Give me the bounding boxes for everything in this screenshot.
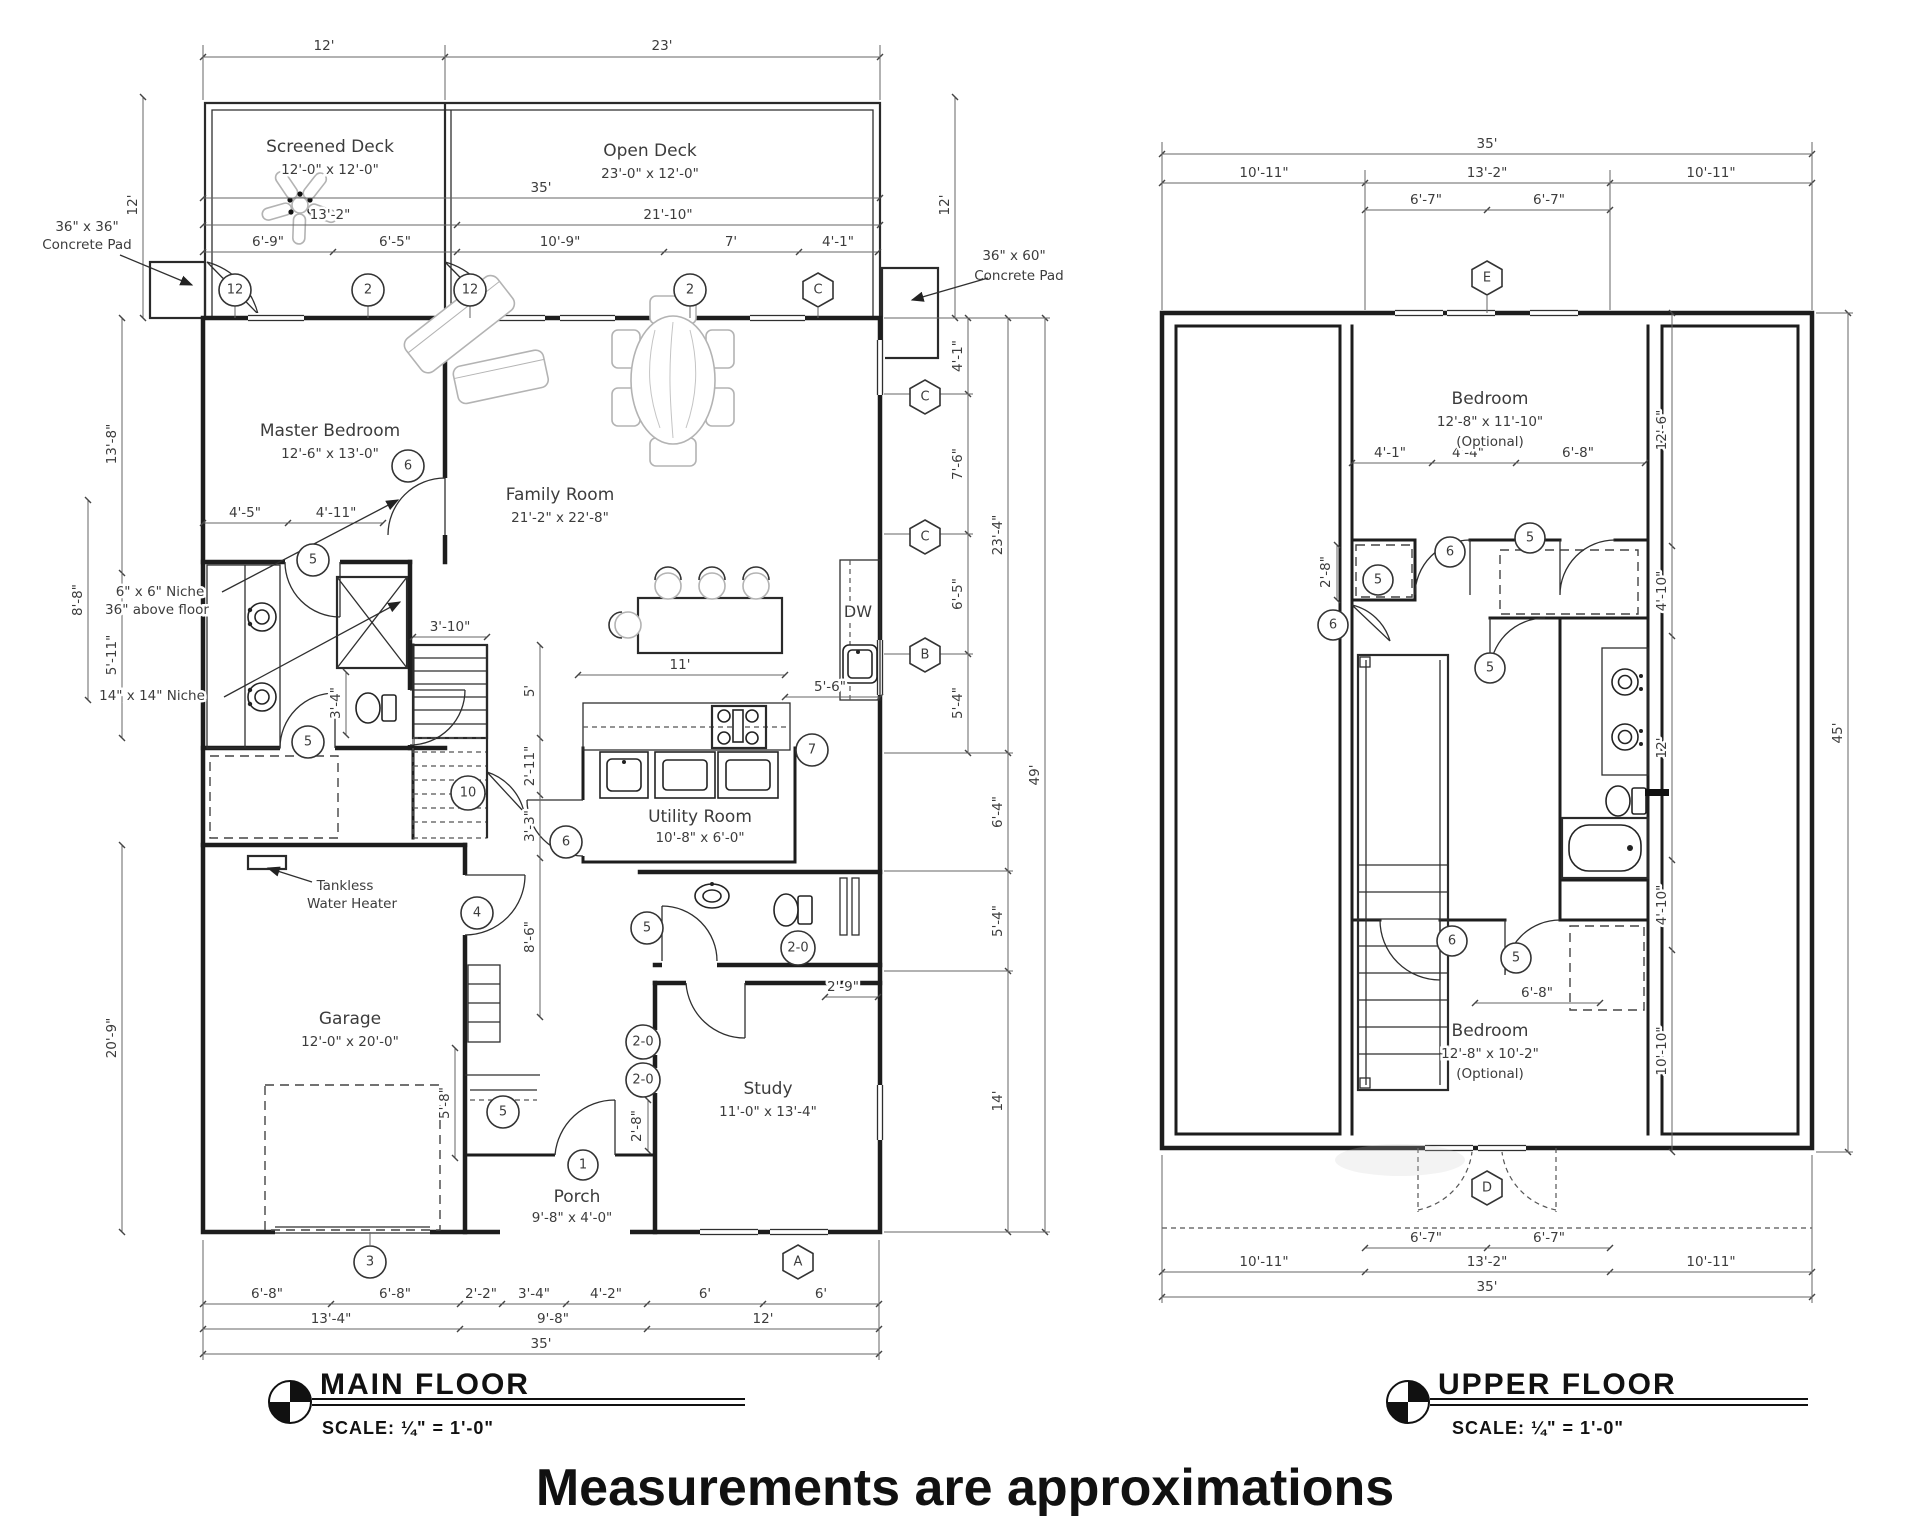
sink-icon: [248, 603, 276, 631]
callout-circle: 6: [550, 826, 582, 858]
callout-circle: 5: [631, 912, 663, 944]
callout-hex: C: [803, 273, 833, 307]
dim-label: 13'-8": [104, 424, 120, 465]
dim-label: 2'-2": [465, 1286, 497, 1302]
svg-text:6: 6: [1446, 545, 1454, 560]
main-floor-title: Main Floor: [320, 1368, 530, 1401]
dim-label: 6'-7": [1533, 1230, 1565, 1246]
dim-label: 12': [314, 38, 335, 54]
dim-label: 35': [531, 1336, 552, 1352]
dim-label: 2'-8": [1318, 556, 1334, 588]
checker-logo-icon: [269, 1381, 311, 1423]
kitchen-island: [638, 598, 782, 653]
dim-label: 8'-6": [522, 921, 538, 953]
dim-label: 13'-2": [1467, 1254, 1508, 1270]
pad-right-label: Concrete Pad: [974, 268, 1064, 284]
faint-watermark: [1335, 1144, 1465, 1176]
callout-hex: D: [1472, 1171, 1502, 1205]
dim-label: 6'-7": [1410, 1230, 1442, 1246]
closet-dashed: [1570, 926, 1644, 1010]
dim-label: 6'-7": [1533, 192, 1565, 208]
svg-text:5: 5: [1374, 573, 1382, 588]
svg-text:6: 6: [1448, 934, 1456, 949]
tankless-label: Water Heater: [307, 896, 398, 912]
svg-text:2-0: 2-0: [632, 1035, 653, 1050]
dim-label: 10'-11": [1686, 165, 1735, 181]
sink-icon: [1612, 669, 1643, 695]
dim-label: 20'-9": [104, 1018, 120, 1059]
room-name-open-deck: Open Deck: [603, 141, 697, 161]
main-fixtures: [207, 560, 880, 1230]
room-name-bedroom-bottom: Bedroom: [1452, 1021, 1529, 1041]
dim-label: 6'-5": [950, 578, 966, 610]
main-stairs: [413, 645, 487, 838]
callout-circle: 2-0: [781, 931, 815, 965]
tub-icon: [1562, 818, 1648, 878]
main-floor-title-block: Main Floor Scale: ¼" = 1'-0": [269, 1368, 745, 1438]
powder-sink-icon: [695, 882, 729, 908]
svg-text:7: 7: [808, 743, 816, 758]
dim-label: 10'-10": [1654, 1026, 1670, 1075]
room-name-garage: Garage: [319, 1009, 381, 1029]
stool-icons: [609, 567, 769, 638]
dim-label: 49': [1027, 765, 1043, 786]
tankless-water-heater-icon: [248, 856, 286, 869]
dim-label: 35': [1477, 136, 1498, 152]
dryer-icon: [718, 752, 778, 798]
dim-label: 13'-2": [310, 207, 351, 223]
disclaimer-text: Measurements are approximations: [536, 1459, 1394, 1517]
niche-label: 14" x 14" Niche: [99, 688, 205, 704]
upper-floor-scale: Scale: ¼" = 1'-0": [1452, 1418, 1624, 1438]
dim-label: 10'-11": [1686, 1254, 1735, 1270]
room-size-screened-deck: 12'-0" x 12'-0": [281, 162, 379, 178]
callout-circle: 6: [1318, 610, 1348, 640]
dining-table-icon: [612, 296, 734, 466]
dim-label: 7': [725, 234, 737, 250]
main-floor-plan: 12' 23' 35' 13'-2" 21'-10" 6'-9" 6'-5" 1…: [42, 38, 1064, 1360]
main-decks: [205, 103, 880, 318]
upper-room-labels: Bedroom 12'-8" x 11'-10" (Optional) Bedr…: [1437, 389, 1543, 1082]
svg-text:12: 12: [227, 283, 244, 298]
callout-circle: 1: [568, 1150, 598, 1180]
room-note-bedroom-bottom: (Optional): [1456, 1066, 1524, 1082]
tankless-label: Tankless: [316, 878, 374, 894]
room-size-porch: 9'-8" x 4'-0": [532, 1210, 613, 1226]
concrete-pad-right: [882, 268, 938, 358]
dim-label: 6'-4": [990, 796, 1006, 828]
dim-label: 3'-10": [430, 619, 471, 635]
dim-label: 5'-4": [990, 905, 1006, 937]
dim-label: 10'-9": [540, 234, 581, 250]
upper-floor-title-block: Upper Floor Scale: ¼" = 1'-0": [1387, 1368, 1808, 1438]
svg-text:5: 5: [1512, 951, 1520, 966]
dim-label: 35': [1477, 1279, 1498, 1295]
main-annotation-labels: 36" x 36" Concrete Pad 36" x 60" Concret…: [42, 219, 1064, 912]
svg-text:5: 5: [1526, 531, 1534, 546]
dim-label: 23': [652, 38, 673, 54]
room-name-porch: Porch: [554, 1187, 601, 1207]
dim-label: 2'-8": [629, 1110, 645, 1142]
dim-label: 6'-8": [1521, 985, 1553, 1001]
dim-label: 6': [815, 1286, 827, 1302]
svg-text:D: D: [1482, 1181, 1492, 1196]
svg-text:5: 5: [304, 735, 312, 750]
dim-label: 5'-11": [104, 635, 120, 676]
dim-label: 4'-10": [1654, 885, 1670, 926]
callout-circle: 5: [1501, 943, 1531, 973]
dim-label: 4'-5": [229, 505, 261, 521]
dim-label: 3'-4": [328, 687, 344, 719]
sink-icon: [1612, 724, 1643, 750]
callout-circle: 2-0: [626, 1025, 660, 1059]
closet-dashed: [1500, 550, 1638, 614]
svg-text:10: 10: [460, 786, 477, 801]
dim-label: 7'-6": [950, 448, 966, 480]
callout-circle: 12: [454, 274, 486, 306]
upper-floor-plan: 35' 10'-11" 13'-2" 10'-11" 6'-7" 6'-7" 4…: [1162, 136, 1853, 1303]
callout-circle: 5: [297, 544, 329, 576]
dim-label: 13'-4": [311, 1311, 352, 1327]
dim-label: 10'-11": [1239, 1254, 1288, 1270]
callout-hex: C: [910, 380, 940, 414]
callout-circle: 12: [219, 274, 251, 306]
shower-icon: [337, 577, 407, 668]
callout-circle: 5: [1515, 523, 1545, 553]
svg-text:C: C: [920, 390, 929, 405]
dim-label: 6'-8": [1562, 445, 1594, 461]
room-size-family-room: 21'-2" x 22'-8": [511, 510, 609, 526]
room-name-study: Study: [743, 1079, 792, 1099]
dim-label: 5'-6": [814, 679, 846, 695]
dim-label: 5'-4": [950, 687, 966, 719]
svg-text:A: A: [794, 1255, 803, 1270]
dim-label: 6'-8": [251, 1286, 283, 1302]
dim-label: 14': [990, 1091, 1006, 1112]
callout-circle: 7: [796, 734, 828, 766]
callout-circle: 5: [1363, 565, 1393, 595]
svg-text:E: E: [1483, 271, 1491, 286]
pad-left-label: 36" x 36": [55, 219, 118, 235]
callout-circle: 10: [451, 776, 485, 810]
callout-circle: 2-0: [626, 1063, 660, 1097]
room-name-family-room: Family Room: [506, 485, 615, 505]
pen-mark: [1645, 789, 1669, 796]
title-blocks: Main Floor Scale: ¼" = 1'-0" Upper Floor…: [269, 1368, 1808, 1517]
room-size-study: 11'-0" x 13'-4": [719, 1104, 817, 1120]
svg-text:5: 5: [1486, 661, 1494, 676]
svg-text:5: 5: [499, 1105, 507, 1120]
upper-floor-title: Upper Floor: [1438, 1368, 1677, 1401]
dim-label: 6'-5": [379, 234, 411, 250]
svg-text:2: 2: [686, 283, 694, 298]
powder-toilet-icon: [774, 894, 812, 926]
dim-label: 10'-11": [1239, 165, 1288, 181]
svg-text:6: 6: [404, 459, 412, 474]
main-floor-scale: Scale: ¼" = 1'-0": [322, 1418, 494, 1438]
callout-hex: B: [910, 638, 940, 672]
dim-label: 4'-1": [822, 234, 854, 250]
dim-label: 35': [531, 180, 552, 196]
stoop-icon: [468, 965, 500, 1042]
blueprint-page: 12' 23' 35' 13'-2" 21'-10" 6'-9" 6'-5" 1…: [0, 0, 1924, 1536]
svg-text:2-0: 2-0: [787, 941, 808, 956]
room-size-garage: 12'-0" x 20'-0": [301, 1034, 399, 1050]
callout-circle: 4: [461, 897, 493, 929]
callout-circle: 6: [1435, 537, 1465, 567]
dim-label: 4'-1": [1374, 445, 1406, 461]
room-size-bedroom-top: 12'-8" x 11'-10": [1437, 414, 1543, 430]
dim-label: 3'-4": [518, 1286, 550, 1302]
dim-label: 13'-2": [1467, 165, 1508, 181]
callout-circle: 2: [352, 274, 384, 306]
svg-text:5: 5: [643, 921, 651, 936]
svg-text:4: 4: [473, 906, 481, 921]
room-name-master-bedroom: Master Bedroom: [260, 421, 400, 441]
callout-hex: A: [783, 1245, 813, 1279]
washer-icon: [655, 752, 715, 798]
dim-label: 23'-4": [990, 515, 1006, 556]
niche-label: 36" above floor: [105, 602, 209, 618]
dim-label: 4'-1": [950, 340, 966, 372]
room-name-screened-deck: Screened Deck: [266, 137, 394, 157]
callout-circle: 6: [392, 450, 424, 482]
upper-stairs: [1358, 655, 1448, 1090]
toilet-icon: [356, 693, 396, 723]
svg-text:C: C: [813, 283, 822, 298]
svg-text:C: C: [920, 530, 929, 545]
room-size-utility-room: 10'-8" x 6'-0": [655, 830, 744, 846]
dim-label: 11': [670, 657, 691, 673]
svg-text:3: 3: [366, 1255, 374, 1270]
room-size-master-bedroom: 12'-6" x 13'-0": [281, 446, 379, 462]
dim-label: 5'-8": [437, 1087, 453, 1119]
dim-label: 6'-8": [379, 1286, 411, 1302]
callout-circle: 2: [674, 274, 706, 306]
dw-label: DW: [844, 602, 872, 621]
room-note-bedroom-top: (Optional): [1456, 434, 1524, 450]
svg-text:12: 12: [462, 283, 479, 298]
svg-text:2-0: 2-0: [632, 1073, 653, 1088]
sink-icon: [248, 683, 276, 711]
pad-right-label: 36" x 60": [982, 248, 1045, 264]
upper-doors: [1162, 540, 1812, 1228]
svg-text:2: 2: [364, 283, 372, 298]
toilet-icon: [1606, 786, 1646, 816]
callout-hex: E: [1472, 261, 1502, 295]
dim-label: 4'-10": [1654, 571, 1670, 612]
dim-label: 21'-10": [643, 207, 692, 223]
dim-label: 12': [125, 195, 141, 216]
dim-label: 4'-11": [316, 505, 357, 521]
dim-label: 5': [522, 685, 538, 697]
dim-label: 12'-6": [1654, 410, 1670, 451]
callout-circle: 6: [1437, 926, 1467, 956]
svg-text:1: 1: [579, 1158, 587, 1173]
main-room-labels: Screened Deck 12'-0" x 12'-0" Open Deck …: [260, 137, 817, 1226]
dim-label: 12': [937, 195, 953, 216]
dim-label: 8'-8": [70, 584, 86, 616]
dim-label: 2'-9": [827, 979, 859, 995]
callout-circle: 3: [354, 1246, 386, 1278]
garage-pad-dashed: [265, 1085, 440, 1230]
svg-text:6: 6: [562, 835, 570, 850]
upper-fixtures: [1356, 545, 1669, 1010]
main-dimensions: 12' 23' 35' 13'-2" 21'-10" 6'-9" 6'-5" 1…: [70, 38, 1050, 1360]
dim-label: 6'-9": [252, 234, 284, 250]
dim-label: 4'-2": [590, 1286, 622, 1302]
niche-label: 6" x 6" Niche: [116, 584, 205, 600]
dim-label: 3'-3": [522, 810, 538, 842]
kitchen-sink-icon: [843, 645, 877, 683]
svg-text:B: B: [921, 648, 930, 663]
dim-label: 6': [699, 1286, 711, 1302]
callout-circle: 5: [487, 1096, 519, 1128]
checker-logo-icon: [1387, 1381, 1429, 1423]
svg-text:5: 5: [309, 553, 317, 568]
floor-plan-drawing: 12' 23' 35' 13'-2" 21'-10" 6'-9" 6'-5" 1…: [0, 0, 1924, 1536]
dim-label: 9'-8": [537, 1311, 569, 1327]
dim-label: 6'-7": [1410, 192, 1442, 208]
utility-sink-icon: [600, 752, 648, 798]
dim-label: 12': [1654, 738, 1670, 759]
callout-circle: 5: [292, 726, 324, 758]
dim-label: 12': [753, 1311, 774, 1327]
room-name-bedroom-top: Bedroom: [1452, 389, 1529, 409]
pad-left-label: Concrete Pad: [42, 237, 132, 253]
dim-label: 2'-11": [522, 746, 538, 787]
room-size-bedroom-bottom: 12'-8" x 10'-2": [1441, 1046, 1539, 1062]
svg-text:6: 6: [1329, 618, 1337, 633]
dim-label: 45': [1830, 723, 1846, 744]
closet-dashed: [210, 756, 338, 838]
room-name-utility-room: Utility Room: [648, 807, 752, 827]
callout-hex: C: [910, 520, 940, 554]
linen-icon: [840, 878, 859, 935]
room-size-open-deck: 23'-0" x 12'-0": [601, 166, 699, 182]
callout-circle: 5: [1475, 653, 1505, 683]
